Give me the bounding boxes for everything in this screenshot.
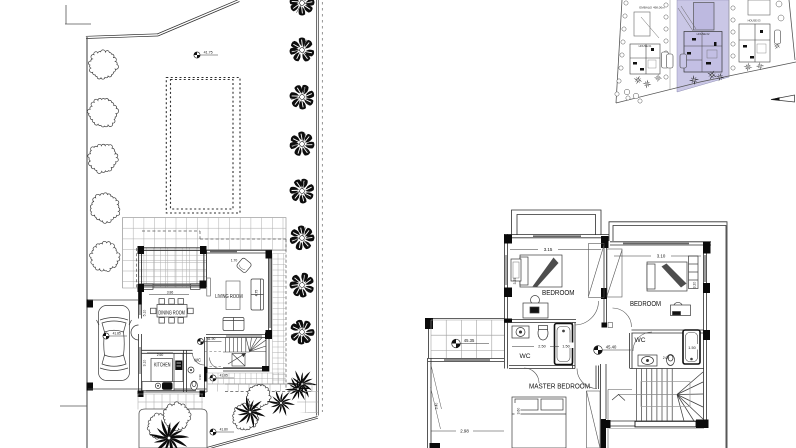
svg-text:4.75: 4.75 <box>255 290 259 297</box>
svg-text:KITCHEN: KITCHEN <box>154 363 171 369</box>
svg-text:5.10: 5.10 <box>143 310 147 317</box>
svg-text:2.98: 2.98 <box>460 429 469 434</box>
svg-text:DINING ROOM: DINING ROOM <box>158 311 185 317</box>
svg-text:1.70: 1.70 <box>231 259 238 263</box>
svg-text:3.40: 3.40 <box>435 403 439 410</box>
svg-text:45.35: 45.35 <box>464 338 475 343</box>
svg-text:1.50: 1.50 <box>688 346 695 350</box>
svg-text:3.86: 3.86 <box>167 290 174 294</box>
svg-text:3.15: 3.15 <box>544 247 553 252</box>
svg-text:2.50: 2.50 <box>538 345 545 349</box>
svg-text:41.85: 41.85 <box>113 332 121 336</box>
svg-text:41.80: 41.80 <box>220 428 228 432</box>
svg-text:3.60: 3.60 <box>517 408 521 415</box>
svg-text:ΕΜΒΑΔΟ 498,00m: ΕΜΒΑΔΟ 498,00m <box>639 6 665 10</box>
svg-text:2.60: 2.60 <box>157 353 164 357</box>
svg-text:2.00: 2.00 <box>663 356 670 360</box>
svg-text:HOUSE 01: HOUSE 01 <box>639 44 652 48</box>
svg-text:HOUSE 03: HOUSE 03 <box>748 19 761 23</box>
svg-text:WC: WC <box>194 358 202 363</box>
svg-text:WC: WC <box>520 354 532 360</box>
svg-text:WC: WC <box>635 338 647 344</box>
svg-text:3.10: 3.10 <box>143 360 147 367</box>
svg-text:0.90: 0.90 <box>198 374 202 380</box>
svg-text:LIVING ROOM: LIVING ROOM <box>215 294 243 300</box>
svg-text:41.90: 41.90 <box>207 337 215 341</box>
svg-text:41.75: 41.75 <box>204 51 213 55</box>
svg-text:45.40: 45.40 <box>606 345 617 350</box>
svg-text:MASTER BEDROOM: MASTER BEDROOM <box>529 384 590 391</box>
svg-text:BEDROOM: BEDROOM <box>630 301 661 308</box>
svg-text:3.25: 3.25 <box>513 278 517 285</box>
svg-text:HOUSE 02: HOUSE 02 <box>697 32 710 36</box>
svg-text:BEDROOM: BEDROOM <box>542 290 575 297</box>
svg-text:3.20: 3.20 <box>693 282 697 289</box>
svg-text:1.50: 1.50 <box>562 345 569 349</box>
svg-text:3.10: 3.10 <box>657 254 666 259</box>
svg-text:41.85: 41.85 <box>220 374 228 378</box>
